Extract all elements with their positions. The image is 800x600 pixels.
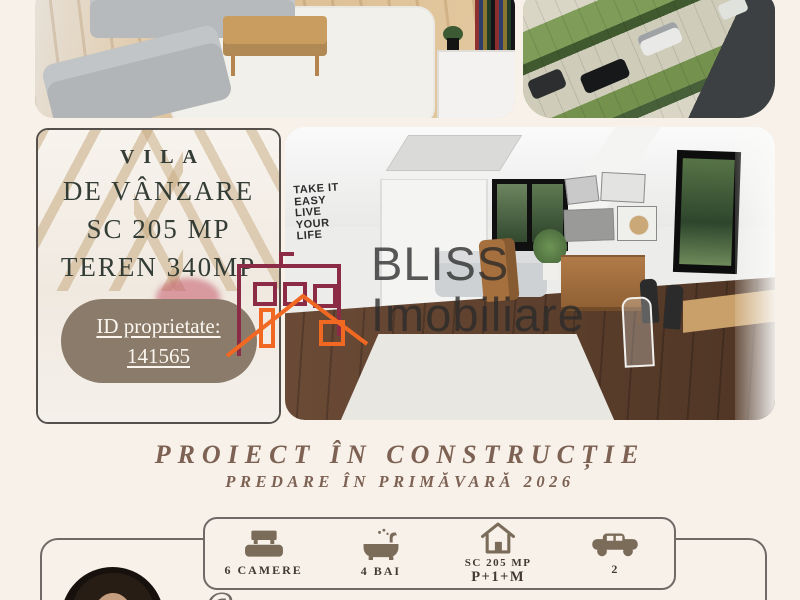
listing-surface: SC 205 MP (38, 214, 279, 245)
listing-flyer: VILA DE VÂNZARE SC 205 MP TEREN 340MP ID… (0, 0, 800, 600)
house-icon (478, 521, 518, 555)
ceiling-light (386, 135, 522, 171)
property-id-value: 141565 (127, 341, 190, 371)
property-id-badge: ID proprietate: 141565 (61, 299, 257, 383)
listing-title: DE VÂNZARE (38, 176, 279, 207)
listing-category: VILA (38, 146, 279, 169)
property-id-label: ID proprietate: (96, 311, 220, 341)
wall-photo (563, 208, 614, 242)
wall-poster: TAKE IT EASY LIVE YOUR LIFE (293, 181, 367, 243)
curtain (735, 127, 775, 420)
subheadline: PREDARE ÎN PRIMĂVARĂ 2026 (0, 472, 800, 492)
feature-parking: 2 (557, 530, 674, 577)
car-icon (589, 530, 641, 558)
dog-photo (617, 206, 657, 241)
feature-rooms: 6 CAMERE (205, 529, 322, 578)
features-bar: 6 CAMERE 4 BAI SC (203, 517, 676, 590)
top-left-photo (35, 0, 515, 118)
wire-chair (621, 296, 655, 367)
feature-surface: SC 205 MP P+1+M (440, 521, 557, 586)
white-rug (340, 334, 615, 420)
tv-cabinet (437, 50, 515, 118)
bookshelf (475, 0, 515, 50)
bed-icon (238, 529, 290, 559)
headline: PROIECT ÎN CONSTRUCȚIE (0, 440, 800, 470)
wood-armchair (478, 238, 519, 303)
coffee-table (223, 16, 327, 56)
main-photo: TAKE IT EASY LIVE YOUR LIFE (285, 127, 775, 420)
feature-baths: 4 BAI (322, 528, 439, 579)
bathtub-icon (357, 528, 405, 560)
listing-card: VILA DE VÂNZARE SC 205 MP TEREN 340MP ID… (36, 128, 281, 424)
wall-photo (565, 175, 600, 205)
top-right-photo (523, 0, 775, 118)
street (523, 0, 775, 118)
listing-land: TEREN 340MP (38, 252, 279, 283)
wall-photo (600, 172, 645, 203)
